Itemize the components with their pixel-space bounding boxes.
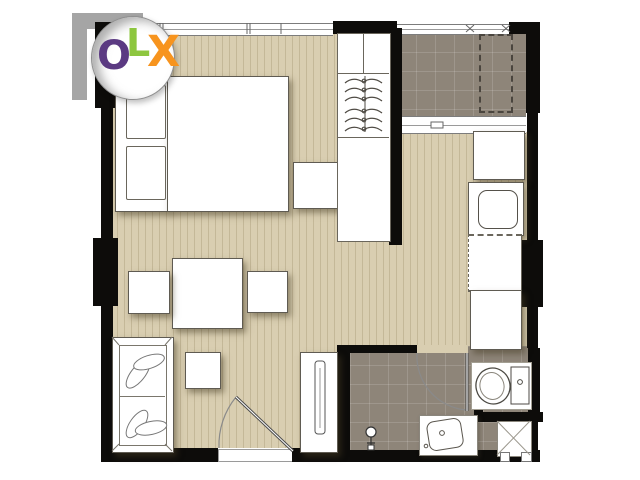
tv-console [300,352,338,453]
washbasin-counter [419,415,478,456]
adjacent-wall-mark [72,13,87,100]
ac-unit-dashed [479,34,513,113]
kitchen-counter [470,290,522,350]
stool-right [247,271,288,313]
olx-letter-x: X [147,31,180,74]
bed-mattress [167,76,289,212]
wall-right-upper [527,113,538,240]
stool-left [128,271,170,314]
refrigerator [473,131,525,180]
bathroom-door-threshold [415,345,468,353]
kitchen-sink [478,190,518,229]
shaft-hatch [500,452,510,462]
shaft-hatch [521,452,532,462]
dining-table [172,258,243,329]
wardrobe-shelf-line [337,137,389,138]
stool-bottom [185,352,221,389]
wardrobe-shelf-line [337,73,389,74]
wall-bathroom-left [337,345,350,452]
sofa-cushion-divider [120,396,165,397]
wall-right-lower [527,307,538,348]
wall-right-balcony [526,33,540,113]
nightstand [293,162,339,209]
wall-left-mid-column [93,238,118,306]
pillow [126,146,166,200]
wardrobe-divider-line [363,33,364,73]
wall-bathroom-top [337,345,417,353]
entrance-threshold [218,449,294,462]
floor-plan: O L X [0,0,640,480]
counter-overhead-dashed [468,234,522,292]
toilet-platform [471,362,532,410]
